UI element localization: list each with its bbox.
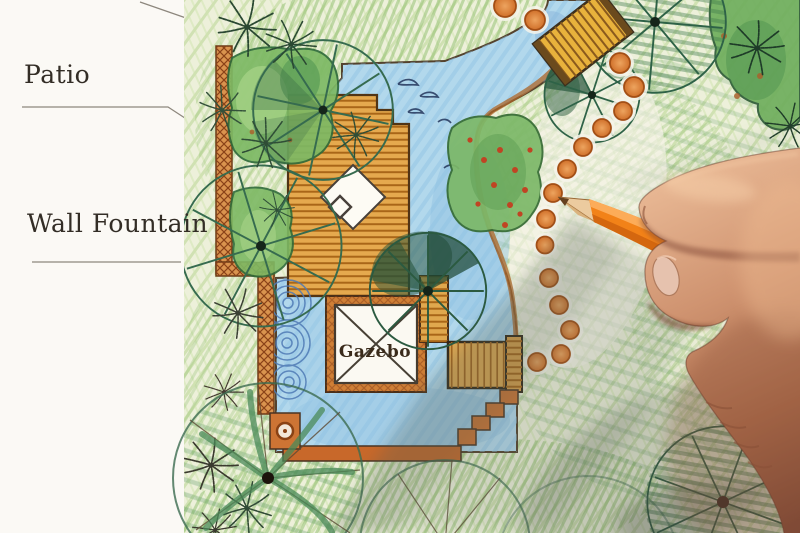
label-patio: Patio xyxy=(24,60,90,89)
plan-drawing xyxy=(0,0,800,533)
plan-photo: Patio Wall Fountain Gazebo xyxy=(0,0,800,533)
label-gazebo: Gazebo xyxy=(333,342,417,362)
label-wall-fountain: Wall Fountain xyxy=(27,209,208,238)
